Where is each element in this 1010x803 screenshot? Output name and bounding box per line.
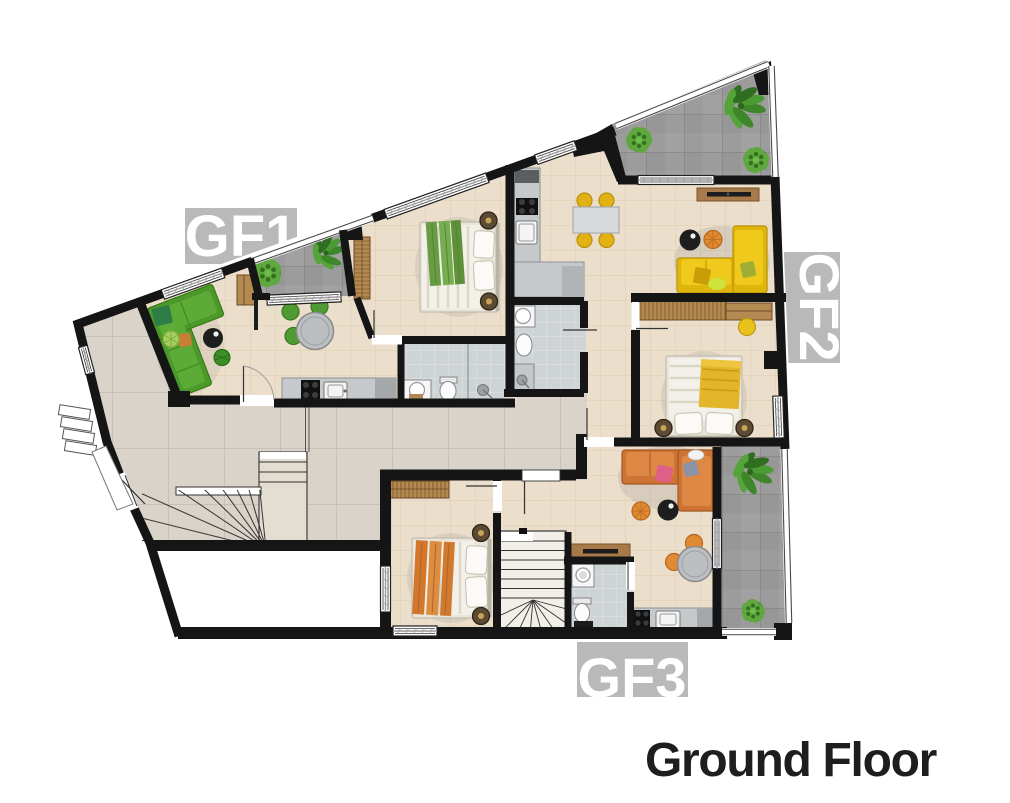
svg-text:Ground Floor: Ground Floor bbox=[645, 734, 937, 787]
svg-text:GF2: GF2 bbox=[788, 253, 851, 362]
svg-text:GF3: GF3 bbox=[578, 646, 687, 709]
